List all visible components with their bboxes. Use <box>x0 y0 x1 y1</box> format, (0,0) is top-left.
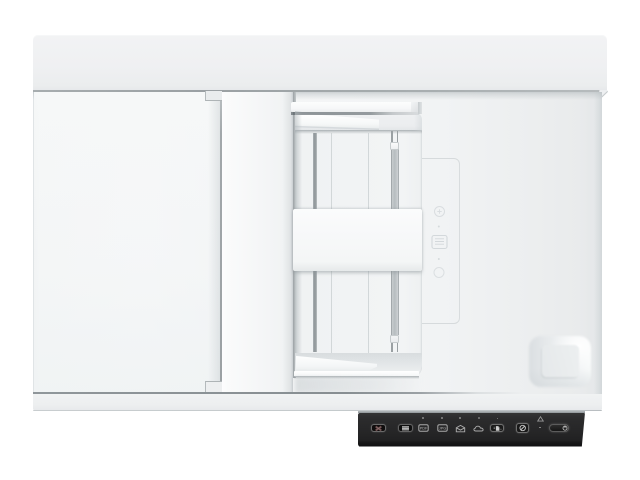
svg-text:JPG: JPG <box>439 427 446 431</box>
svg-text:PDF: PDF <box>420 427 428 431</box>
